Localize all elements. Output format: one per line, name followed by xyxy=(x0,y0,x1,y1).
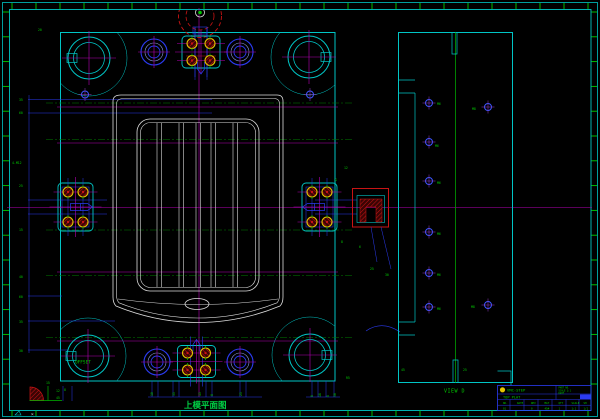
dim-text: 6 xyxy=(310,395,314,397)
title-block-cell: 1 xyxy=(559,407,561,411)
title-block-cell: QTY xyxy=(559,401,564,405)
screw-cluster-left xyxy=(50,177,102,237)
plan-view-caption: 上模平面图 xyxy=(184,400,227,411)
dims-left: 35604-M12251540603530 xyxy=(12,98,23,353)
dim-text: 25 xyxy=(463,368,467,372)
dim-text: 15 xyxy=(198,392,202,396)
dim-text: 6 xyxy=(359,245,361,249)
dim-text: 35 xyxy=(19,320,23,324)
guide-bushing-bottom-left xyxy=(61,329,115,383)
screw-cluster-top xyxy=(175,27,227,77)
dim-text: 20 xyxy=(38,28,42,32)
return-pin-bottom-left xyxy=(141,346,173,378)
plan-view: OFFSET xyxy=(7,0,592,401)
dim-text: 45 xyxy=(56,396,60,400)
dim-text: 35 xyxy=(19,98,23,102)
screw-cluster-bottom xyxy=(171,337,223,387)
title-block-cell: DATE xyxy=(517,401,524,405)
title-block-cell: 1:1 xyxy=(572,407,577,411)
title-block-cell: 1/1 xyxy=(584,407,589,411)
dim-text: 12 xyxy=(344,166,348,170)
dim-text: M6 xyxy=(437,102,441,106)
detail-section-hatch xyxy=(360,199,382,222)
dim-text: 6 xyxy=(326,395,330,397)
cad-drawing-sheet: OFFSET xyxy=(0,0,600,419)
dim-text: M8 xyxy=(472,107,476,111)
dim-text: 15 xyxy=(19,228,23,232)
title-block-cell: 01 xyxy=(503,407,507,411)
dim-text: 8 xyxy=(64,388,66,392)
extension-lines xyxy=(28,27,400,401)
dim-text: 45 xyxy=(401,368,405,372)
title-block-cell: 0 xyxy=(531,407,533,411)
dim-text: 30 xyxy=(19,349,23,353)
dim-text: 30 xyxy=(385,273,389,277)
dim-text: 8 xyxy=(210,394,214,396)
dim-text: G xyxy=(335,178,337,182)
guide-bushing-top-left xyxy=(62,31,116,85)
scale-arrow-icon xyxy=(15,411,21,415)
molded-part xyxy=(113,95,283,323)
guide-bushing-top-right xyxy=(282,30,336,84)
dims-plan-extra: 12G862530R5 xyxy=(335,166,389,380)
dim-text: 18 xyxy=(318,393,322,397)
return-pin-top-left xyxy=(138,36,170,68)
dim-text: R5 xyxy=(346,376,350,380)
dim-text: 40 xyxy=(19,275,23,279)
title-block-cell: SH xyxy=(584,401,588,405)
frame-ruler-ticks xyxy=(3,3,597,416)
dim-text: 60 xyxy=(19,111,23,115)
dim-text: 15 xyxy=(46,381,50,385)
rib-panel-inner xyxy=(141,123,256,288)
small-hole-right xyxy=(304,88,317,101)
title-block-info-line: DATE xyxy=(559,392,565,395)
axis-mark: ✕ xyxy=(31,413,34,418)
title-block-cell: REV xyxy=(531,401,536,405)
cad-canvas: OFFSET xyxy=(0,0,600,419)
dim-text: 30 xyxy=(333,393,337,397)
gate-ellipse xyxy=(185,299,209,310)
title-block-cell: 45# xyxy=(545,407,550,411)
dim-text: 25 xyxy=(239,392,243,396)
side-holes xyxy=(423,97,495,314)
side-view: VIEW D xyxy=(399,33,513,395)
dims-bottom: 103515825618630 xyxy=(150,392,337,397)
return-pin-top-right xyxy=(224,36,256,68)
dim-text: 8 xyxy=(341,240,343,244)
title-block-cell: NO. xyxy=(503,401,508,405)
part-name: TOP PLAT xyxy=(503,396,521,400)
rib-panel-outer xyxy=(137,119,259,291)
company-name: VMC-STEP xyxy=(507,387,526,392)
offset-marking: OFFSET xyxy=(75,360,91,366)
dim-text: M6 xyxy=(437,273,441,277)
title-block-leader xyxy=(498,371,512,386)
centerlines xyxy=(7,8,592,397)
dim-text: 35 xyxy=(172,392,176,396)
screw-cluster-right xyxy=(294,177,346,237)
dim-text: M6 xyxy=(437,232,441,236)
guide-bushing-bottom-right xyxy=(283,328,337,382)
dim-text: M8 xyxy=(471,305,475,309)
dim-text: 60 xyxy=(19,295,23,299)
drawing-frame xyxy=(3,3,598,417)
dim-text: 25 xyxy=(19,184,23,188)
top-notch xyxy=(452,33,457,55)
ribs xyxy=(157,123,238,287)
revision-cell xyxy=(580,395,591,400)
dims-top: 20 xyxy=(38,28,42,32)
detail-box xyxy=(353,189,392,270)
small-hole-left xyxy=(79,88,92,101)
dim-text: 12 xyxy=(56,389,60,393)
dim-text: 10 xyxy=(150,392,154,396)
company-logo xyxy=(500,387,505,392)
dim-text: M6 xyxy=(435,144,439,148)
dim-text: M6 xyxy=(437,181,441,185)
side-view-caption: VIEW D xyxy=(444,389,465,395)
dim-text: M6 xyxy=(437,307,441,311)
dim-text: 25 xyxy=(370,267,374,271)
frame-outer-border xyxy=(3,3,598,417)
title-block-cell: MAT xyxy=(545,401,550,405)
ucs-icon: ✕ xyxy=(15,386,62,418)
locating-ring xyxy=(179,0,222,38)
dim-text: 4-M12 xyxy=(12,161,22,165)
return-pin-bottom-right xyxy=(224,346,256,378)
dims-side-view: M6M6M6M6M6M6M8M84525 xyxy=(401,102,476,372)
title-block-cell: SCALE xyxy=(572,401,580,405)
title-block: VMC-STEP TOP PLAT PART NO.SCALE 1:1DATE … xyxy=(498,371,592,411)
